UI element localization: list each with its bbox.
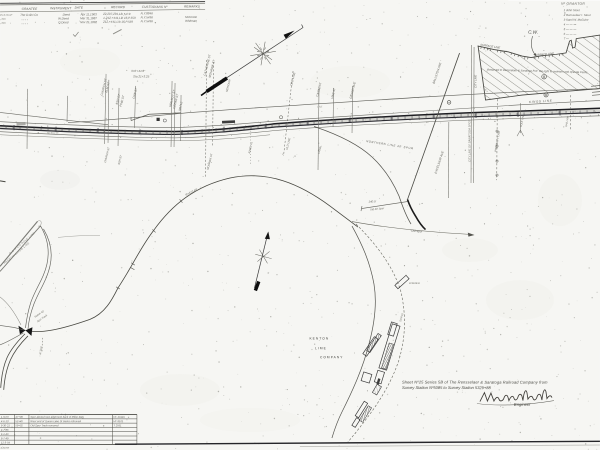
svg-text:6-1-40: 6-1-40 bbox=[1, 432, 9, 436]
svg-text:West end of Queen Lake St trac: West end of Queen Lake St tracks removed bbox=[30, 419, 81, 423]
svg-text:LIME: LIME bbox=[315, 346, 327, 350]
svg-text:COMPANY: COMPANY bbox=[320, 355, 344, 359]
svg-text:CITY LINE: CITY LINE bbox=[474, 75, 478, 88]
svg-text:Old Spur Track removed: Old Spur Track removed bbox=[30, 423, 59, 427]
svg-text:4-6-13: 4-6-13 bbox=[1, 419, 9, 423]
svg-text:T 2051: T 2051 bbox=[113, 423, 122, 427]
svg-text:372’+41’8”: 372’+41’8” bbox=[131, 69, 146, 73]
svg-text:Survey Station Nº5085 to Surve: Survey Station Nº5085 to Survey Station … bbox=[402, 385, 492, 390]
svg-text:N.Y.5496: N.Y.5496 bbox=[141, 19, 154, 23]
svg-text:REMARKS: REMARKS bbox=[184, 5, 201, 9]
svg-text:HF 8101: HF 8101 bbox=[113, 419, 123, 423]
svg-text:59+02: 59+02 bbox=[15, 423, 23, 427]
svg-text:1 John Stout: 1 John Stout bbox=[564, 8, 580, 12]
svg-text:140.0’: 140.0’ bbox=[369, 200, 377, 204]
svg-text:KENTON: KENTON bbox=[309, 337, 329, 341]
svg-text:12-3-54: 12-3-54 bbox=[1, 440, 10, 444]
svg-text:CUSTODIANS Nº: CUSTODIANS Nº bbox=[142, 5, 169, 9]
svg-text:5 — — —: 5 — — — bbox=[564, 27, 577, 31]
svg-text:C.W.: C.W. bbox=[528, 30, 538, 35]
svg-text:CITY LINE OF SARATOGA SPGS: CITY LINE OF SARATOGA SPGS bbox=[467, 119, 471, 162]
svg-text:4-7-36: 4-7-36 bbox=[1, 428, 9, 432]
svg-text:RECORD: RECORD bbox=[111, 5, 126, 9]
svg-text:Spur altered new alignment bac: Spur altered new alignment back of Mille… bbox=[30, 415, 84, 419]
svg-text:„ tion: „ tion bbox=[0, 22, 6, 25]
svg-text:INSTRUMENT: INSTRUMENT bbox=[50, 6, 72, 10]
svg-text:9-30-21: 9-30-21 bbox=[1, 423, 10, 427]
svg-text:4-20-57: 4-20-57 bbox=[0, 447, 9, 450]
svg-text:47+08: 47+08 bbox=[15, 415, 23, 419]
svg-text:„ „ „ „: „ „ „ „ bbox=[21, 21, 29, 25]
svg-text:4 — — —: 4 — — — bbox=[564, 22, 577, 26]
svg-text:HF 20119: HF 20119 bbox=[113, 415, 125, 419]
svg-text:1-9-03: 1-9-03 bbox=[1, 415, 9, 419]
svg-text:„ tion: „ tion bbox=[0, 18, 6, 21]
svg-text:212,+441,Lib 16,P.559: 212,+441,Lib 16,P.559 bbox=[102, 20, 133, 24]
svg-text:P.14 Ch.Nº: P.14 Ch.Nº bbox=[0, 13, 12, 17]
svg-text:Nº GRANTOR: Nº GRANTOR bbox=[561, 2, 585, 6]
svg-text:52+40: 52+40 bbox=[15, 419, 23, 423]
svg-text:7 —: 7 — bbox=[564, 36, 569, 40]
svg-text:66’ R.O.W.: 66’ R.O.W. bbox=[47, 131, 59, 134]
svg-text:Q.Deed: Q.Deed bbox=[58, 20, 69, 24]
svg-text:6 — — —: 6 — — — bbox=[564, 32, 577, 36]
svg-text:GRANTEE: GRANTEE bbox=[22, 7, 38, 11]
svg-text:3 Saml W. McGuire: 3 Saml W. McGuire bbox=[564, 18, 589, 22]
svg-text:Engineer: Engineer bbox=[514, 402, 531, 407]
svg-text:2 Rensselaer I. Stout: 2 Rensselaer I. Stout bbox=[563, 13, 591, 17]
svg-text:Whitman: Whitman bbox=[185, 19, 197, 23]
svg-text:Nov 21,1892: Nov 21,1892 bbox=[80, 20, 97, 24]
svg-text:B: B bbox=[545, 93, 547, 97]
svg-text:9-7-49: 9-7-49 bbox=[1, 436, 9, 440]
svg-text:Sheet Nº25 Series 5B of The: Sheet Nº25 Series 5B of The Rensselaer &… bbox=[402, 380, 548, 385]
svg-text:LINE: LINE bbox=[317, 106, 323, 109]
svg-text:POWDER: POWDER bbox=[409, 282, 420, 285]
svg-text:Sta 21+3.25: Sta 21+3.25 bbox=[133, 74, 150, 78]
svg-text:DATE: DATE bbox=[75, 6, 84, 10]
